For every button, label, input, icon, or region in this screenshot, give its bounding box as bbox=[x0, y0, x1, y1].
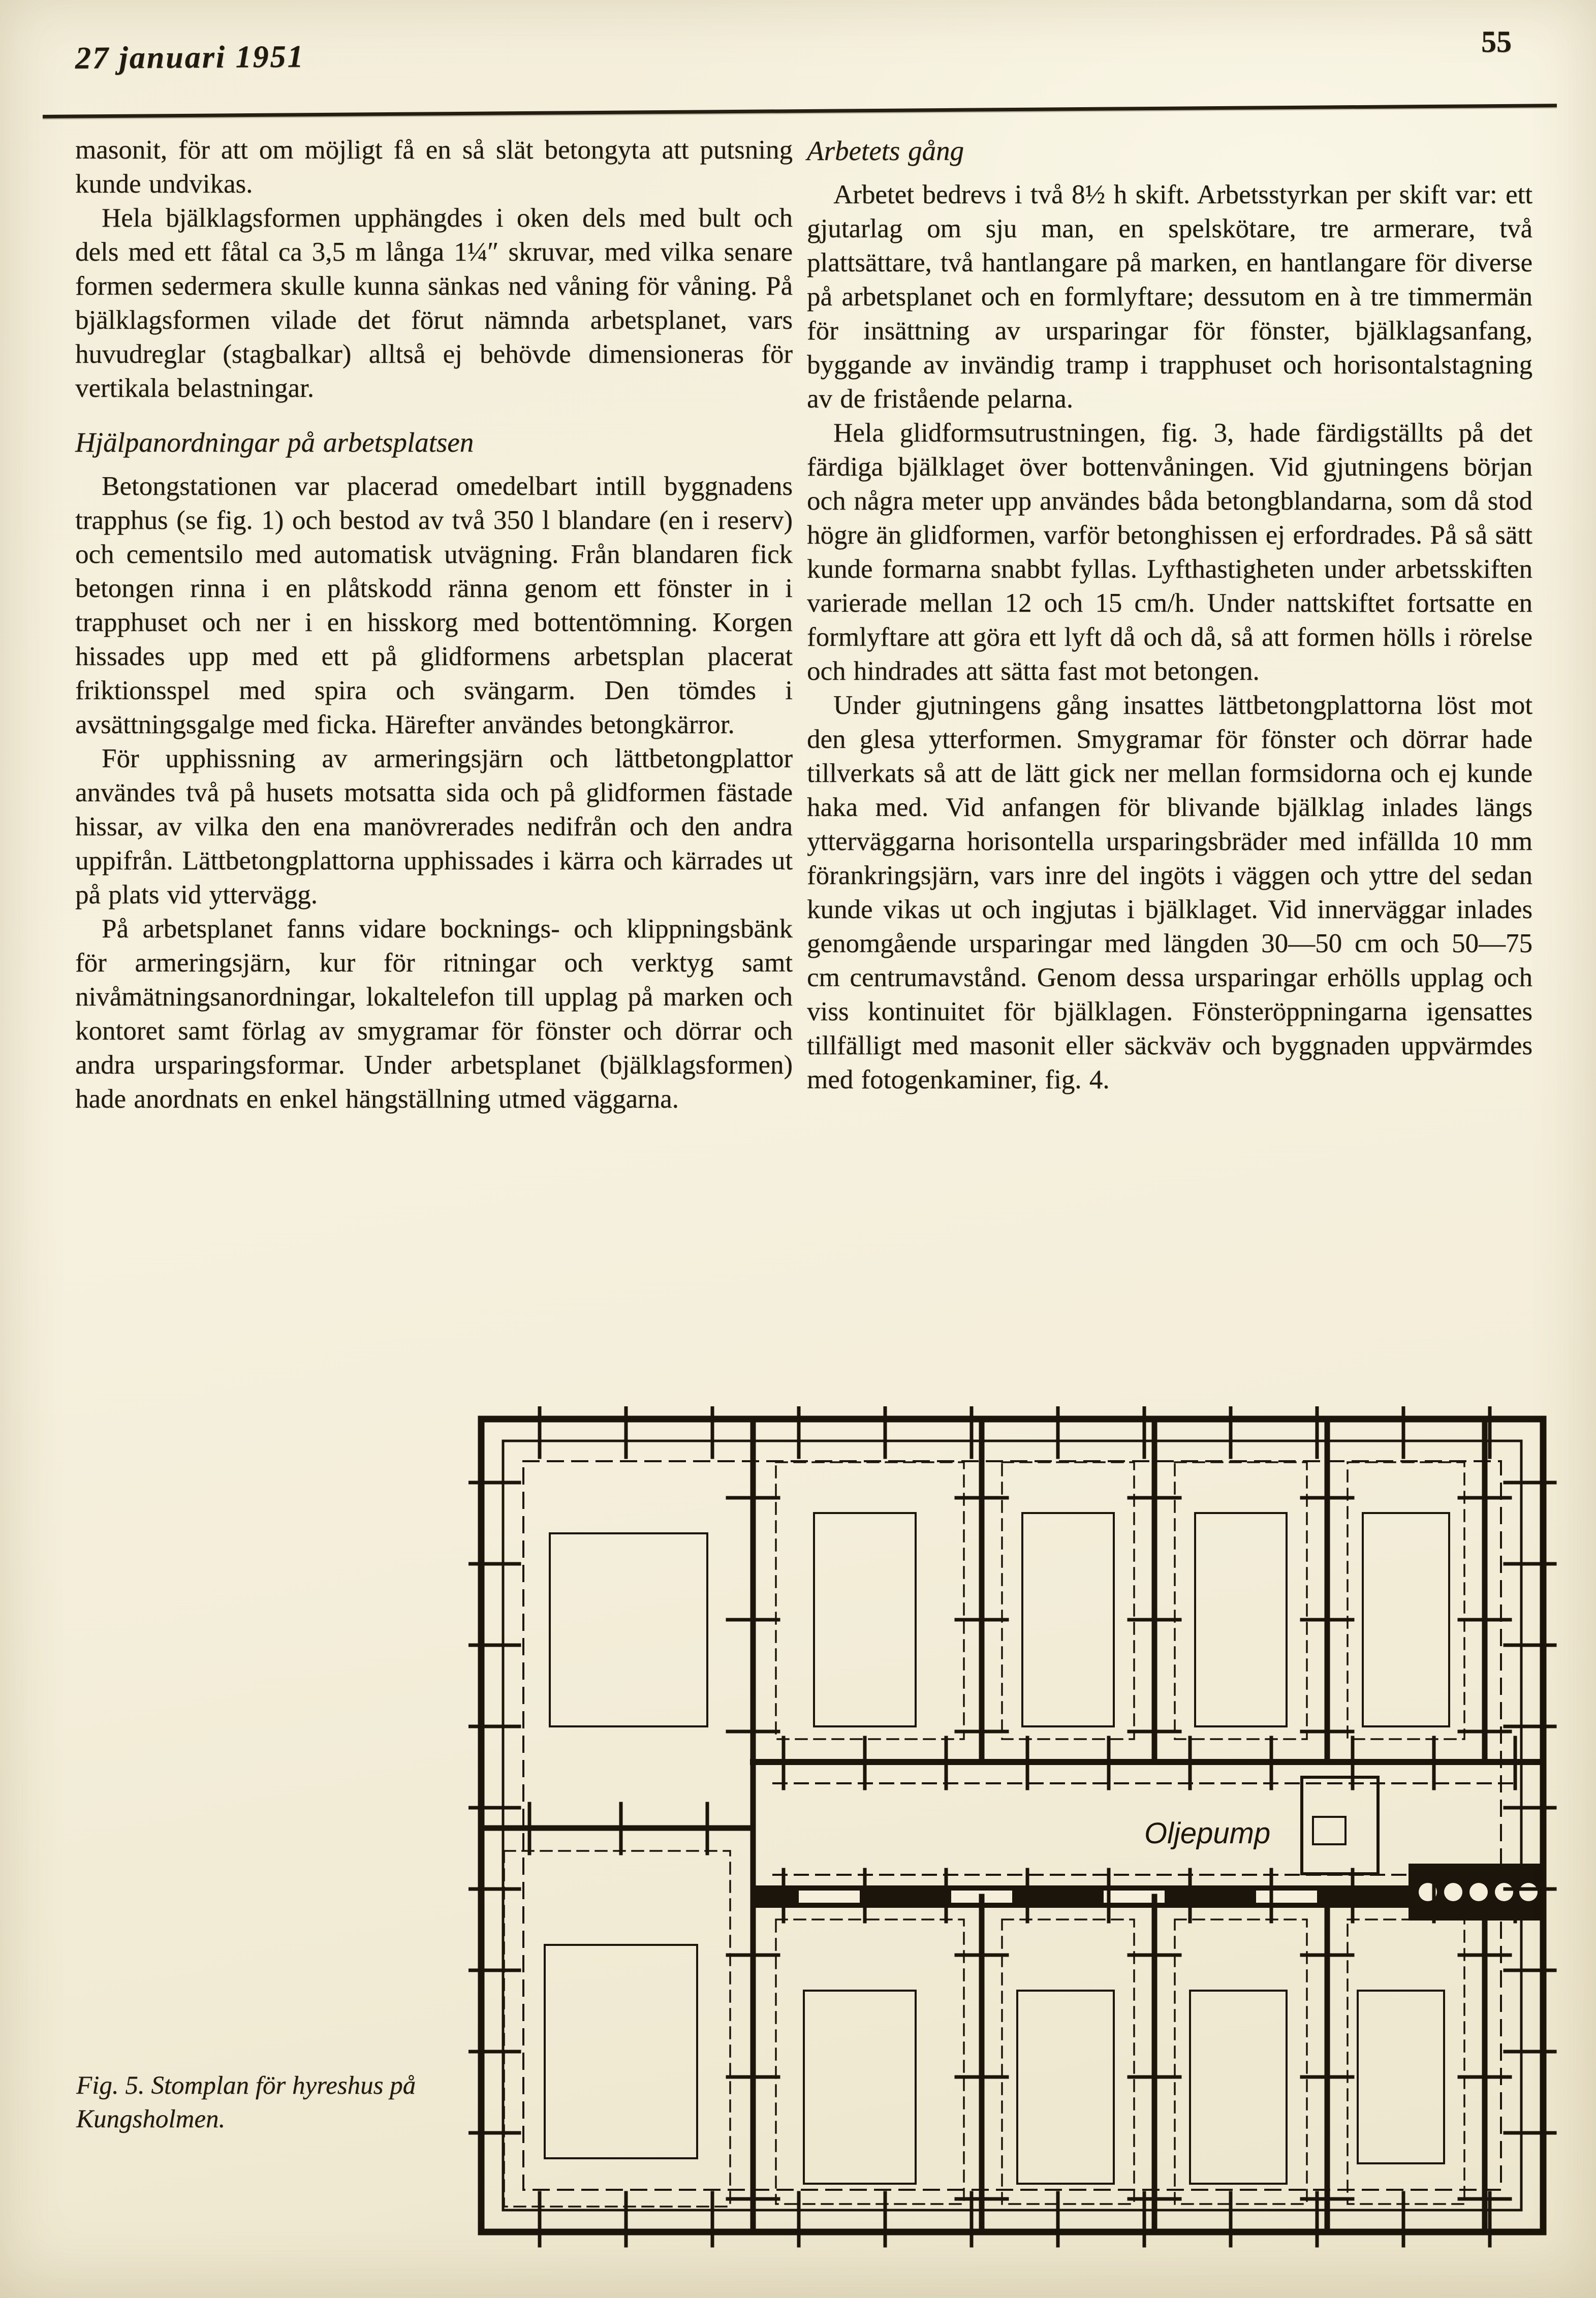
paragraph: Hela bjälklagsformen upphängdes i oken d… bbox=[75, 201, 793, 405]
floor-plan-figure: Oljepump bbox=[468, 1406, 1557, 2250]
stair-band bbox=[1409, 1864, 1542, 1921]
paragraph: Under gjutningens gång insattes lättbeto… bbox=[807, 688, 1532, 1097]
oljepump-area: Oljepump bbox=[1144, 1777, 1378, 1874]
room-inner-rects bbox=[545, 1513, 1449, 2184]
header-date: 27 januari 1951 bbox=[75, 39, 305, 76]
right-column: Arbetets gång Arbetet bedrevs i två 8½ h… bbox=[807, 133, 1532, 1097]
paragraph: Arbetet bedrevs i två 8½ h skift. Arbets… bbox=[807, 178, 1532, 416]
interior-walls bbox=[481, 1419, 1543, 2232]
oljepump-label: Oljepump bbox=[1144, 1817, 1270, 1850]
figure-caption: Fig. 5. Stomplan för hyreshus på Kungsho… bbox=[76, 2069, 467, 2136]
section-heading: Hjälpanordningar på arbetsplatsen bbox=[75, 426, 793, 459]
section-heading: Arbetets gång bbox=[807, 134, 1532, 168]
header-rule bbox=[43, 104, 1557, 118]
paragraph: För upphissning av armeringsjärn och lät… bbox=[75, 742, 793, 912]
scanned-journal-page: 27 januari 1951 55 masonit, för att om m… bbox=[0, 0, 1596, 2298]
paragraph: masonit, för att om möjligt få en så slä… bbox=[75, 133, 793, 201]
page-number: 55 bbox=[1481, 24, 1512, 59]
paragraph: Hela glidformsutrustningen, fig. 3, hade… bbox=[807, 416, 1532, 688]
paragraph: På arbetsplanet fanns vidare bocknings- … bbox=[75, 912, 793, 1116]
paragraph: Betongstationen var placerad omedelbart … bbox=[75, 469, 793, 742]
left-column: masonit, för att om möjligt få en så slä… bbox=[75, 133, 793, 1116]
